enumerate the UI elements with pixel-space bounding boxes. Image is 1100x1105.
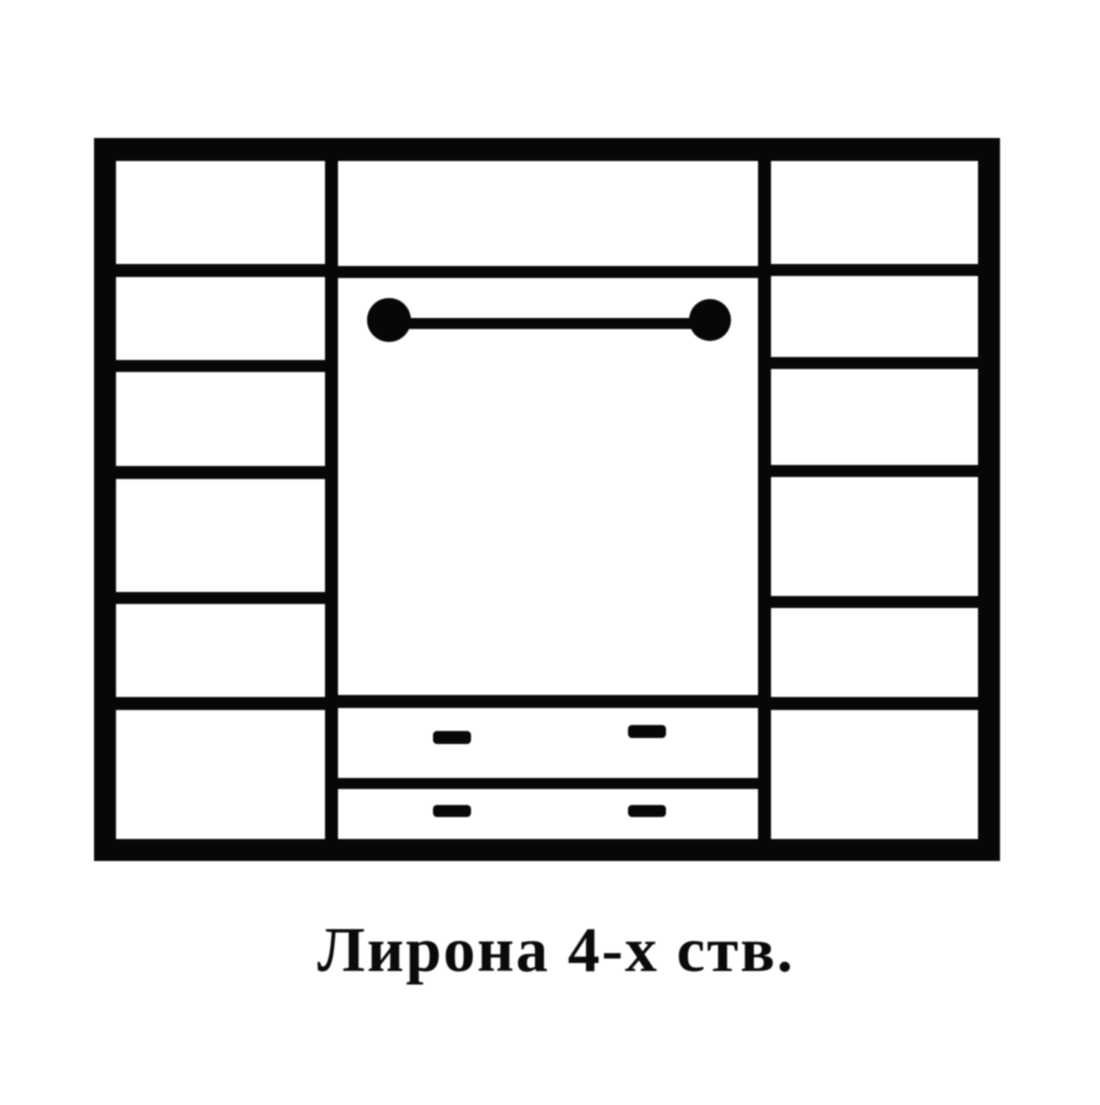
svg-text:Лирона 4-х ств.: Лирона 4-х ств. — [317, 914, 794, 985]
